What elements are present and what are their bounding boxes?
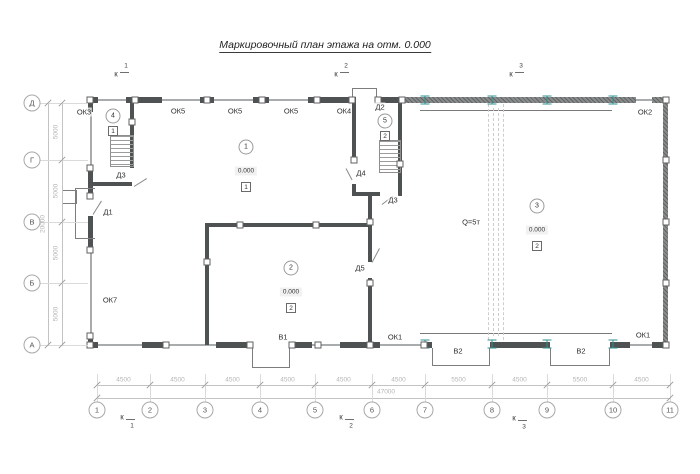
crane-beam-top xyxy=(420,110,612,111)
wall-column-marker xyxy=(421,342,428,349)
section-mark-number: 2 xyxy=(349,423,353,430)
dim-line-bottom-total xyxy=(97,398,670,399)
axis-extension-line xyxy=(40,160,88,161)
wall-column-marker xyxy=(349,97,356,104)
stairwell2-wall xyxy=(352,192,380,196)
room-elevation: 0.000 xyxy=(235,167,257,176)
opening-label-д4: Д4 xyxy=(355,169,366,178)
stairwell1-wall xyxy=(92,182,132,186)
axis-bubble-col-5: 5 xyxy=(307,402,324,419)
wall-column-marker xyxy=(367,219,374,226)
axis-extension-line xyxy=(315,374,316,402)
axis-bubble-col-2: 2 xyxy=(142,402,159,419)
axis-extension-line xyxy=(260,374,261,402)
section-mark-line xyxy=(518,420,527,421)
section-mark-line xyxy=(120,72,129,73)
room-floor-type: 2 xyxy=(380,131,390,141)
door-d3-swing xyxy=(134,178,147,187)
wall-column-marker xyxy=(399,97,406,104)
door-d2-gap xyxy=(354,97,376,103)
stairs-flight xyxy=(379,140,401,173)
steel-column-icon xyxy=(421,96,430,105)
wall-column-marker xyxy=(237,222,244,229)
dim-value: 4500 xyxy=(512,377,526,384)
room-number-circle: 1 xyxy=(239,140,254,155)
dim-value: 4500 xyxy=(116,377,130,384)
opening-label-ок5: ОК5 xyxy=(227,107,243,116)
dim-line-left-segments xyxy=(62,103,63,345)
hall-separating-wall xyxy=(368,196,372,262)
axis-bubble-col-11: 11 xyxy=(662,402,679,419)
opening-label-ок1: ОК1 xyxy=(387,333,403,342)
wall-column-marker xyxy=(163,342,170,349)
wall-column-marker xyxy=(367,280,374,287)
room-floor-type: 2 xyxy=(532,241,542,251)
axis-bubble-row-Б: Б xyxy=(24,275,41,292)
room-elevation: 0.000 xyxy=(280,288,302,297)
entrance-vestibule-d2 xyxy=(352,88,377,97)
opening-label-д5: Д5 xyxy=(354,264,365,273)
wall-column-marker xyxy=(289,342,296,349)
drawing-title: Маркировочный план этажа на отм. 0.000 xyxy=(219,39,431,53)
section-mark-line xyxy=(126,419,135,420)
dim-line-left-total xyxy=(48,103,49,345)
opening-label-ок4: ОК4 xyxy=(336,107,352,116)
wall-column-marker xyxy=(313,222,320,229)
wall-column-marker xyxy=(87,193,94,200)
dim-total-value: 20000 xyxy=(40,215,47,233)
axis-bubble-col-7: 7 xyxy=(417,402,434,419)
axis-bubble-row-Г: Г xyxy=(24,152,41,169)
axis-extension-line xyxy=(547,374,548,402)
crane-capacity-label: Q=5т xyxy=(462,218,480,227)
section-mark-number: 1 xyxy=(124,63,128,70)
section-mark-number: 3 xyxy=(522,424,526,431)
room-floor-type: 1 xyxy=(241,182,251,192)
dim-value: 4500 xyxy=(280,377,294,384)
section-mark-letter: к xyxy=(120,413,124,422)
dim-value: 4500 xyxy=(391,377,405,384)
monorail-dashed-line xyxy=(498,108,499,336)
opening-label-ок3: ОК3 xyxy=(76,108,92,117)
opening-label-д1: Д1 xyxy=(102,208,113,217)
dim-value: 4500 xyxy=(634,377,648,384)
stairwell2-wall xyxy=(352,97,356,160)
axis-extension-line xyxy=(40,283,88,284)
porch-step xyxy=(62,190,77,204)
wall-bottom-pier xyxy=(490,342,550,348)
floor-plan-canvas: Маркировочный план этажа на отм. 0.000 xyxy=(0,0,700,474)
axis-bubble-col-10: 10 xyxy=(605,402,622,419)
room-number-circle: 2 xyxy=(284,261,299,276)
window-ok2-line xyxy=(636,99,652,101)
opening-label-ок5: ОК5 xyxy=(170,107,186,116)
axis-bubble-row-А: А xyxy=(24,337,41,354)
dim-value: 5000 xyxy=(53,184,60,198)
wall-column-marker xyxy=(663,219,670,226)
dim-value: 5500 xyxy=(451,377,465,384)
axis-bubble-col-9: 9 xyxy=(539,402,556,419)
wall-column-marker xyxy=(314,97,321,104)
steel-column-icon xyxy=(543,340,552,349)
axis-bubble-col-4: 4 xyxy=(252,402,269,419)
dim-value: 5000 xyxy=(53,124,60,138)
wall-column-marker xyxy=(315,342,322,349)
gate-v1-ramp xyxy=(252,348,290,368)
wall-top-hall xyxy=(404,97,636,103)
wall-column-marker xyxy=(129,119,136,126)
monorail-dashed-line xyxy=(503,104,504,340)
room-floor-type: 1 xyxy=(108,126,118,136)
opening-label-в2: В2 xyxy=(575,347,586,356)
opening-label-ок5: ОК5 xyxy=(283,107,299,116)
dim-value: 5000 xyxy=(53,245,60,259)
axis-extension-line xyxy=(492,374,493,402)
section-mark-number: 2 xyxy=(344,63,348,70)
crane-beam-bottom xyxy=(420,333,612,334)
steel-column-icon xyxy=(609,96,618,105)
section-mark-line xyxy=(515,72,524,73)
stairs-flight xyxy=(110,135,134,167)
opening-label-ок2: ОК2 xyxy=(637,108,653,117)
axis-bubble-col-6: 6 xyxy=(364,402,381,419)
wall-column-marker xyxy=(397,161,404,168)
wall-column-marker xyxy=(351,157,358,164)
wall-column-marker xyxy=(204,97,211,104)
axis-extension-line xyxy=(205,374,206,402)
steel-column-icon xyxy=(609,340,618,349)
steel-column-icon xyxy=(488,96,497,105)
monorail-dashed-line xyxy=(493,108,494,336)
section-mark-letter: к xyxy=(339,413,343,422)
door-d5-swing xyxy=(372,248,380,263)
wall-column-marker xyxy=(87,165,94,172)
wall-column-marker xyxy=(247,342,254,349)
section-mark-number: 3 xyxy=(519,63,523,70)
dim-total-value: 47000 xyxy=(377,389,395,396)
dim-value: 5500 xyxy=(573,377,587,384)
door-d4-swing xyxy=(346,168,353,180)
dim-value: 4500 xyxy=(170,377,184,384)
wall-column-marker xyxy=(663,97,670,104)
room-elevation: 0.000 xyxy=(526,226,548,235)
axis-bubble-col-8: 8 xyxy=(484,402,501,419)
axis-extension-line xyxy=(150,374,151,402)
wall-column-marker xyxy=(259,97,266,104)
section-mark-letter: к xyxy=(509,70,513,79)
axis-extension-line xyxy=(372,374,373,402)
room2-wall-left xyxy=(205,223,209,345)
monorail-dashed-line xyxy=(488,104,489,340)
opening-label-ок1: ОК1 xyxy=(635,331,651,340)
opening-label-д3: Д3 xyxy=(115,171,126,180)
opening-label-ок7: ОК7 xyxy=(102,296,118,305)
dim-line-bottom-segments xyxy=(97,385,670,386)
wall-column-marker xyxy=(132,97,139,104)
wall-column-marker xyxy=(204,259,211,266)
steel-column-icon xyxy=(488,340,497,349)
dim-value: 4500 xyxy=(225,377,239,384)
wall-column-marker xyxy=(87,333,94,340)
wall-column-marker xyxy=(87,247,94,254)
axis-bubble-row-В: В xyxy=(24,214,41,231)
room-number-circle: 3 xyxy=(530,199,545,214)
axis-bubble-col-3: 3 xyxy=(197,402,214,419)
section-mark-number: 1 xyxy=(130,423,134,430)
section-mark-letter: к xyxy=(512,414,516,423)
room-number-circle: 4 xyxy=(106,109,121,124)
wall-column-marker xyxy=(663,342,670,349)
room-floor-type: 2 xyxy=(286,303,296,313)
room2-wall-top xyxy=(205,223,372,227)
axis-extension-line xyxy=(613,374,614,402)
wall-column-marker xyxy=(663,157,670,164)
room-number-circle: 5 xyxy=(378,114,393,129)
section-mark-line xyxy=(340,72,349,73)
hall-separating-wall xyxy=(368,278,372,345)
axis-bubble-row-Д: Д xyxy=(24,95,41,112)
axis-extension-line xyxy=(40,222,88,223)
wall-column-marker xyxy=(663,280,670,287)
wall-column-marker xyxy=(367,342,374,349)
opening-label-д3: Д3 xyxy=(387,196,398,205)
section-mark-line xyxy=(345,419,354,420)
dim-value: 4500 xyxy=(336,377,350,384)
axis-extension-line xyxy=(425,374,426,402)
steel-column-icon xyxy=(543,96,552,105)
opening-label-в2: В2 xyxy=(452,347,463,356)
wall-bottom-pier xyxy=(340,342,380,348)
opening-label-в1: В1 xyxy=(277,333,288,342)
axis-bubble-col-1: 1 xyxy=(89,402,106,419)
section-mark-letter: к xyxy=(114,70,118,79)
opening-label-д2: Д2 xyxy=(374,103,385,112)
dim-value: 5000 xyxy=(53,307,60,321)
section-mark-letter: к xyxy=(334,70,338,79)
